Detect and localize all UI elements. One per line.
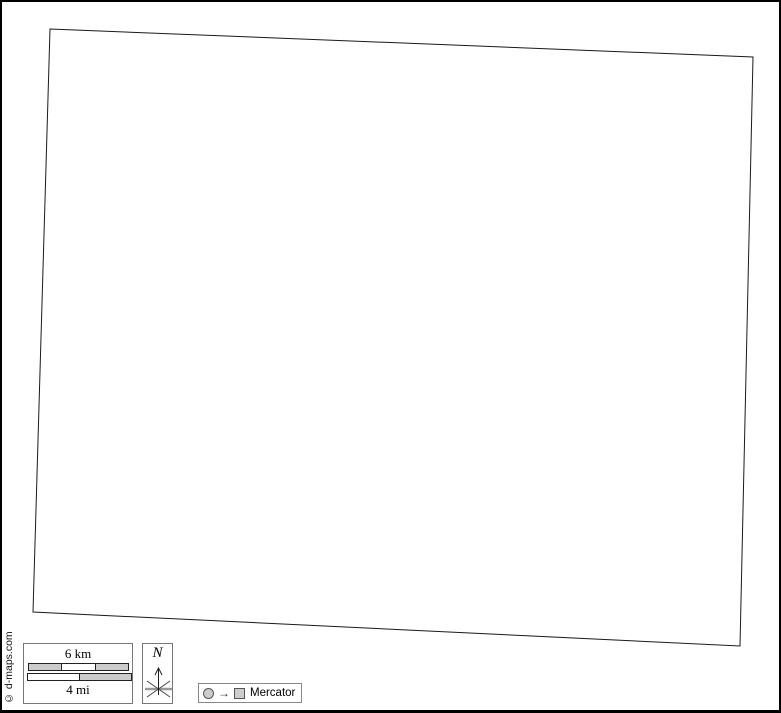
scale-segment xyxy=(61,664,94,670)
projection-box: → Mercator xyxy=(198,683,302,703)
compass-star-icon xyxy=(143,664,174,702)
scale-bar-box: 6 km 4 mi xyxy=(23,643,133,704)
north-label: N xyxy=(143,645,172,662)
arrow-right-icon: → xyxy=(218,687,230,699)
scale-segment xyxy=(95,664,128,670)
circle-icon xyxy=(203,688,214,699)
copyright-text: © d-maps.com xyxy=(2,634,16,704)
map-outline xyxy=(33,29,753,646)
map-canvas xyxy=(0,0,781,713)
scale-segment xyxy=(79,674,131,680)
scale-segment xyxy=(29,664,61,670)
scale-segment xyxy=(28,674,79,680)
scale-bar-mi xyxy=(27,673,132,681)
scale-mi-label: 4 mi xyxy=(24,682,132,698)
projection-label: Mercator xyxy=(249,687,295,699)
scale-km-label: 6 km xyxy=(24,646,132,662)
scale-bar-km xyxy=(28,663,129,671)
north-arrow-box: N xyxy=(142,643,173,704)
square-icon xyxy=(234,688,245,699)
